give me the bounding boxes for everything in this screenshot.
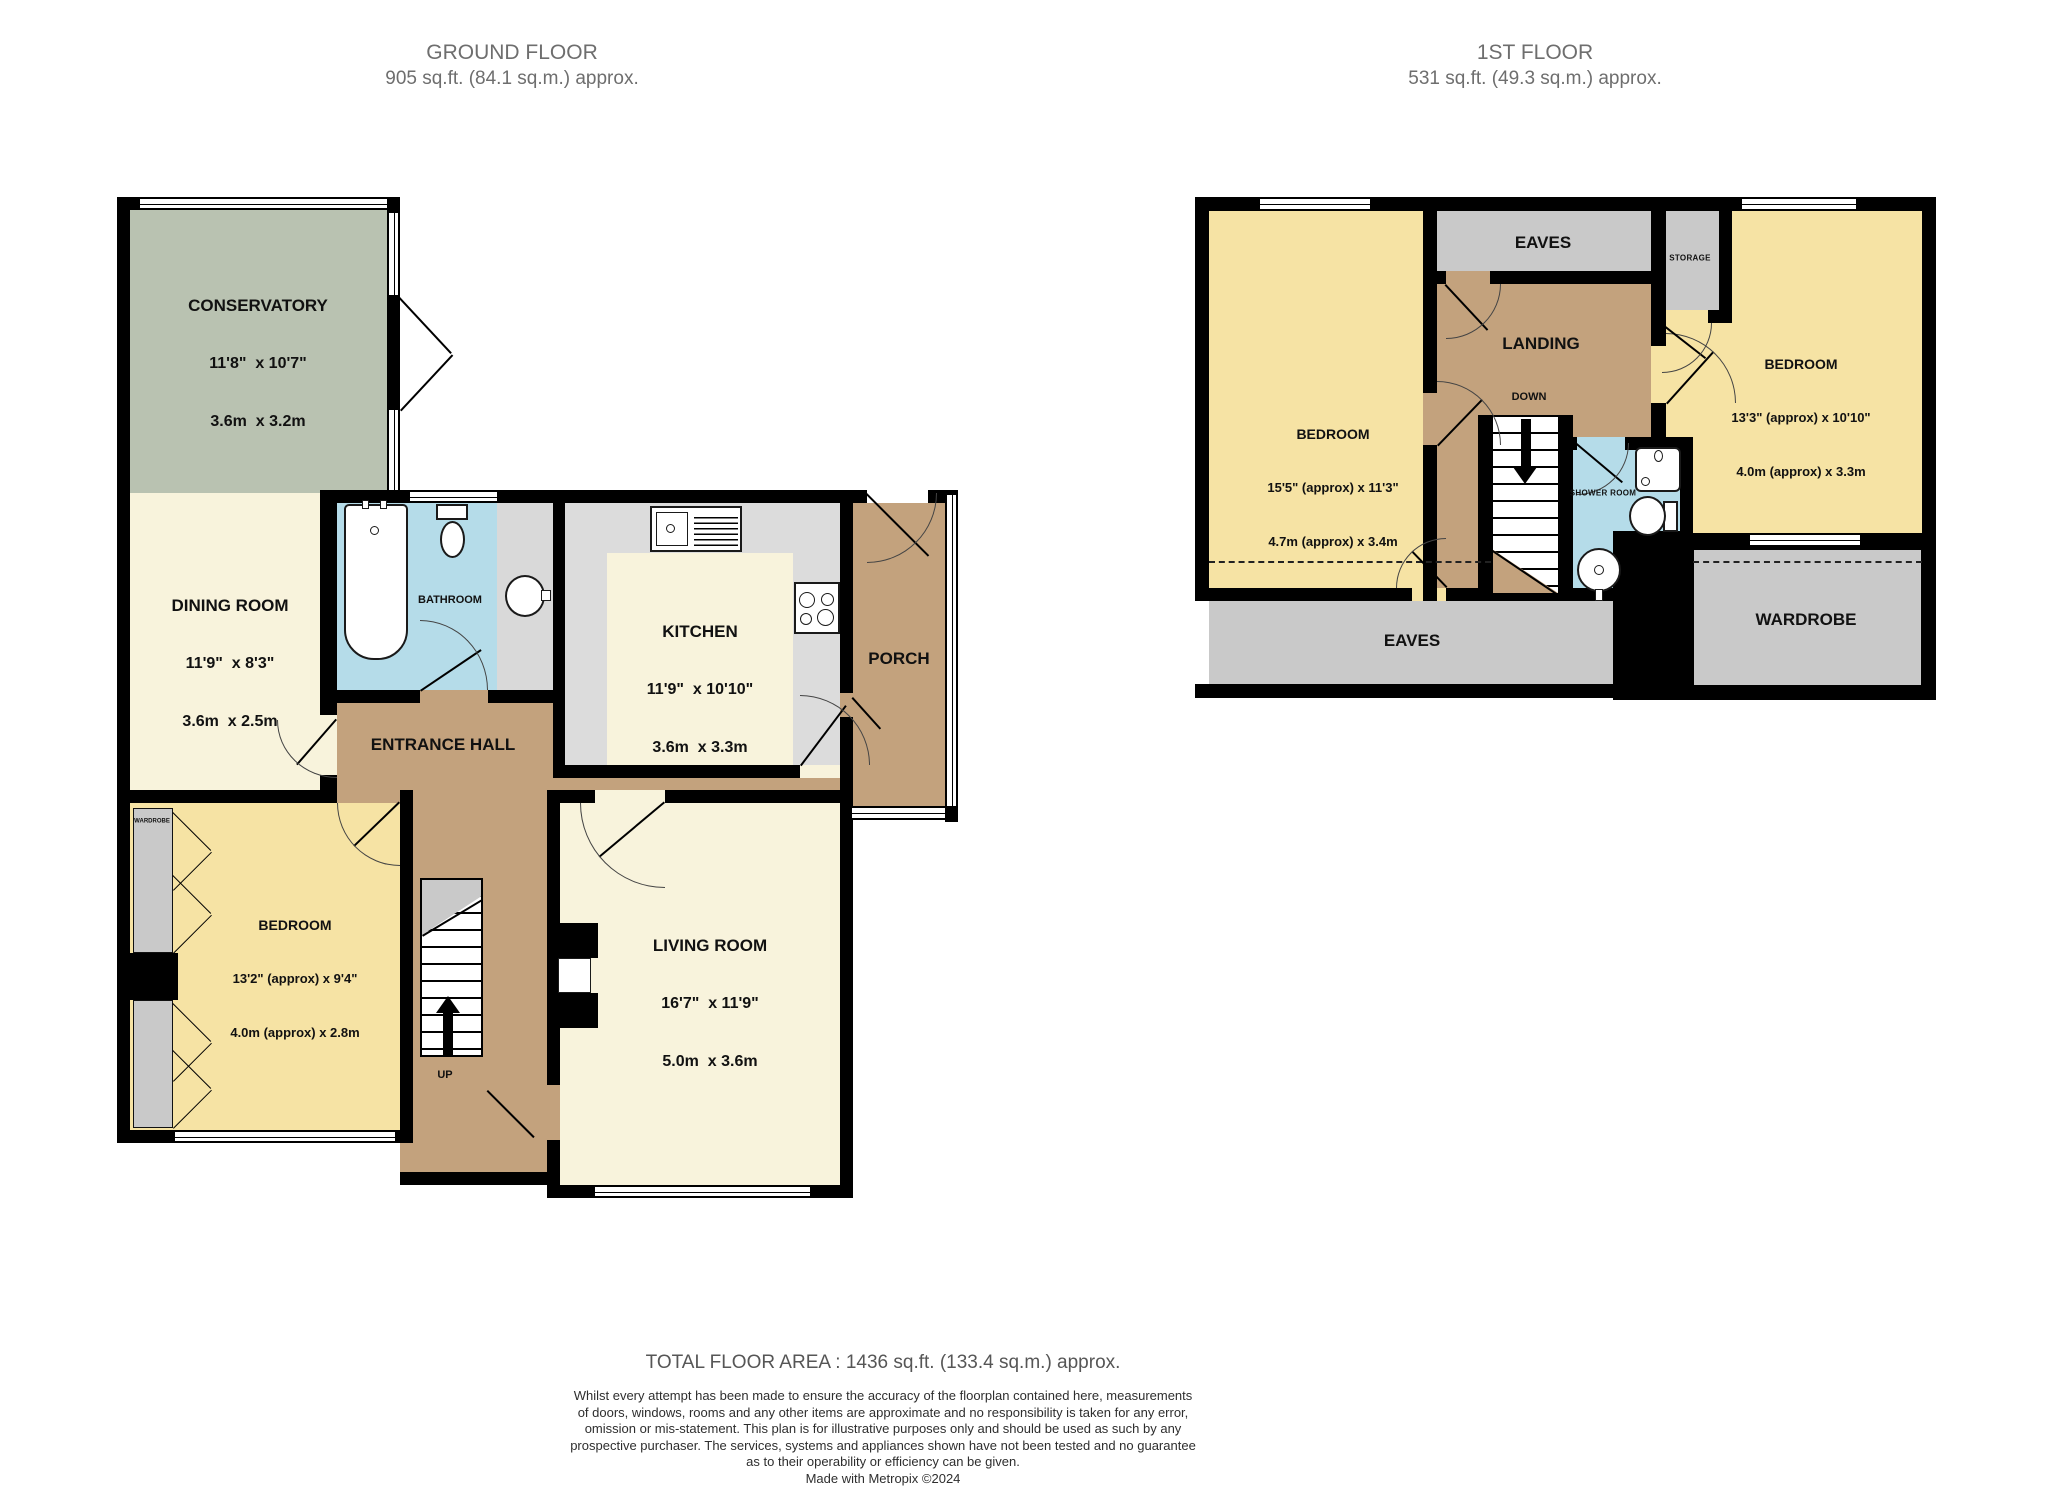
fireplace-hearth bbox=[558, 958, 591, 993]
label-bedroom-right: BEDROOM 13'3" (approx) x 10'10" 4.0m (ap… bbox=[1731, 319, 1870, 499]
ground-floor-title: GROUND FLOOR bbox=[385, 40, 638, 66]
burner-icon bbox=[821, 593, 834, 606]
burner-icon bbox=[800, 613, 812, 625]
disclaimer-line: prospective purchaser. The services, sys… bbox=[570, 1438, 1196, 1455]
label-bathroom: BATHROOM bbox=[418, 594, 482, 606]
shower-drain-icon bbox=[1641, 477, 1650, 486]
label-entrance-hall: ENTRANCE HALL bbox=[371, 734, 516, 756]
label-bedroom-left: BEDROOM 15'5" (approx) x 11'3" 4.7m (app… bbox=[1267, 389, 1398, 569]
wall bbox=[1655, 310, 1666, 323]
burner-icon bbox=[817, 609, 834, 626]
window bbox=[1742, 197, 1856, 211]
door-gap bbox=[1446, 271, 1490, 284]
label-kitchen: KITCHEN 11'9" x 10'10" 3.6m x 3.3m bbox=[647, 585, 753, 777]
door-gap bbox=[420, 690, 488, 703]
wall bbox=[400, 790, 413, 1143]
shower-tap-icon bbox=[1654, 450, 1663, 462]
bedroom-wardrobe-top bbox=[133, 808, 173, 953]
drainer-icon bbox=[694, 513, 738, 546]
label-landing: LANDING bbox=[1502, 333, 1579, 355]
wall bbox=[1680, 686, 1936, 700]
window bbox=[175, 1130, 395, 1143]
bath-tap-icon bbox=[380, 500, 387, 509]
wall bbox=[337, 690, 420, 703]
wall bbox=[320, 493, 337, 715]
label-porch: PORCH bbox=[868, 648, 929, 670]
disclaimer-line: as to their operability or efficiency ca… bbox=[570, 1454, 1196, 1471]
window bbox=[1750, 533, 1860, 547]
wall bbox=[1922, 211, 1936, 700]
fireplace-side bbox=[558, 923, 598, 958]
porch-glazing-side bbox=[945, 495, 958, 806]
wall bbox=[547, 790, 595, 803]
ground-floor-area: 905 sq.ft. (84.1 sq.m.) approx. bbox=[385, 66, 638, 92]
wall bbox=[117, 197, 130, 1143]
bedroom-wardrobe-bottom bbox=[133, 1000, 173, 1128]
wall-block bbox=[1613, 531, 1693, 700]
label-wardrobe-small: WARDROBE bbox=[134, 819, 170, 826]
door-gap bbox=[1666, 310, 1708, 323]
burner-icon bbox=[799, 592, 815, 608]
door-gap bbox=[800, 765, 840, 778]
first-floor-area: 531 sq.ft. (49.3 sq.m.) approx. bbox=[1408, 66, 1661, 92]
wall bbox=[400, 1172, 560, 1185]
label-storage: STORAGE bbox=[1669, 254, 1711, 263]
window bbox=[387, 410, 400, 490]
basin-tap-icon bbox=[541, 590, 551, 601]
stairs-down-arrow-head bbox=[1513, 467, 1537, 484]
french-door-leaf bbox=[400, 354, 453, 411]
label-eaves-top: EAVES bbox=[1515, 232, 1571, 254]
eaves-dashed-line bbox=[1693, 561, 1922, 563]
wall bbox=[1708, 310, 1719, 323]
toilet-icon bbox=[440, 521, 465, 558]
stairs-up-arrow-shaft bbox=[443, 1011, 453, 1055]
toilet-cistern-icon bbox=[436, 504, 468, 520]
credit-line: Made with Metropix ©2024 bbox=[570, 1471, 1196, 1488]
disclaimer: Whilst every attempt has been made to en… bbox=[570, 1388, 1196, 1488]
porch-glazing-bottom bbox=[852, 806, 945, 820]
wall bbox=[553, 503, 565, 765]
french-door-leaf bbox=[399, 297, 452, 354]
wall bbox=[1195, 211, 1209, 601]
label-stairs-up: UP bbox=[437, 1069, 452, 1081]
door-gap bbox=[547, 1085, 560, 1140]
label-living: LIVING ROOM 16'7" x 11'9" 5.0m x 3.6m bbox=[653, 899, 767, 1091]
wall bbox=[840, 503, 853, 693]
wall bbox=[1490, 271, 1666, 284]
first-floor-header: 1ST FLOOR 531 sq.ft. (49.3 sq.m.) approx… bbox=[1408, 40, 1661, 92]
total-floor-area: TOTAL FLOOR AREA : 1436 sq.ft. (133.4 sq… bbox=[646, 1352, 1121, 1374]
bath-drain-icon bbox=[370, 526, 379, 535]
door-gap bbox=[595, 790, 665, 803]
wall bbox=[1680, 437, 1693, 545]
chimney-breast bbox=[117, 953, 178, 1000]
basin-drain-icon bbox=[1594, 565, 1604, 575]
wall bbox=[1195, 588, 1412, 601]
wall bbox=[1719, 211, 1732, 323]
bath-tap-icon bbox=[362, 500, 369, 509]
window bbox=[595, 1185, 810, 1198]
wardrobe-top-line bbox=[1693, 547, 1922, 549]
basin-icon bbox=[505, 575, 545, 617]
toilet-icon bbox=[1629, 496, 1666, 536]
label-conservatory: CONSERVATORY 11'8" x 10'7" 3.6m x 3.2m bbox=[188, 259, 328, 451]
ground-floor-header: GROUND FLOOR 905 sq.ft. (84.1 sq.m.) app… bbox=[385, 40, 638, 92]
disclaimer-line: Whilst every attempt has been made to en… bbox=[570, 1388, 1196, 1405]
label-shower-room: SHOWER ROOM bbox=[1570, 489, 1636, 498]
window bbox=[1260, 197, 1370, 211]
wall bbox=[1423, 211, 1437, 393]
wall bbox=[1195, 684, 1620, 698]
stairs-down-arrow-shaft bbox=[1521, 419, 1531, 469]
label-wardrobe: WARDROBE bbox=[1755, 609, 1856, 631]
label-dining: DINING ROOM 11'9" x 8'3" 3.6m x 2.5m bbox=[171, 559, 288, 751]
wall bbox=[665, 790, 853, 803]
kitchen-drain-icon bbox=[666, 524, 675, 533]
wall bbox=[1430, 271, 1446, 284]
wall bbox=[117, 790, 337, 803]
disclaimer-line: omission or mis-statement. This plan is … bbox=[570, 1421, 1196, 1438]
label-eaves-bottom: EAVES bbox=[1384, 630, 1440, 652]
fireplace-side bbox=[558, 993, 598, 1028]
wall bbox=[1560, 437, 1577, 450]
window bbox=[410, 490, 497, 503]
door-gap bbox=[337, 790, 400, 803]
first-floor-title: 1ST FLOOR bbox=[1408, 40, 1661, 66]
door-gap bbox=[1423, 393, 1437, 445]
label-stairs-down: DOWN bbox=[1512, 391, 1547, 403]
window bbox=[140, 197, 387, 210]
basin-tap-icon bbox=[1595, 589, 1603, 601]
wall bbox=[945, 806, 958, 822]
floorplan-page: { "floors": { "ground": { "title": "GROU… bbox=[0, 0, 2048, 1480]
window bbox=[387, 213, 400, 295]
stove-icon bbox=[794, 582, 840, 634]
label-bedroom-ground: BEDROOM 13'2" (approx) x 9'4" 4.0m (appr… bbox=[230, 880, 359, 1060]
disclaimer-line: of doors, windows, rooms and any other i… bbox=[570, 1405, 1196, 1422]
